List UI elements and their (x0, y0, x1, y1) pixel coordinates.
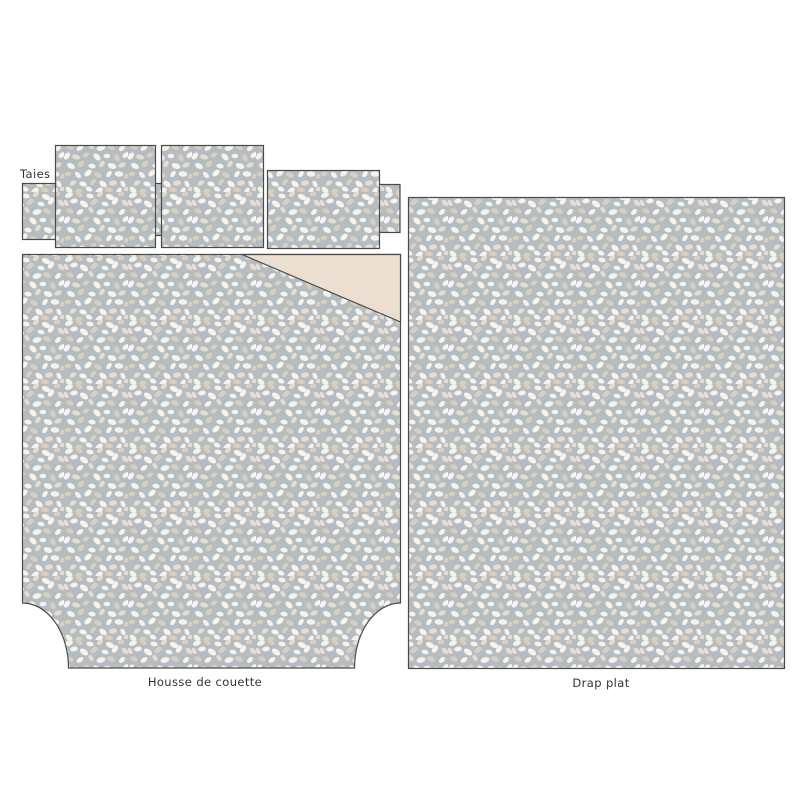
pillowcase-flap-left (23, 184, 61, 240)
bedding-diagram: Taies Housse de couette Drap plat (0, 0, 800, 800)
flat-sheet-panel (409, 198, 785, 669)
fabric-pieces (23, 146, 785, 669)
pillowcase-square-panel-back (162, 146, 264, 248)
label-flat-sheet: Drap plat (572, 676, 629, 690)
label-pillowcases: Taies (19, 167, 50, 181)
duvet-cover-panel (23, 255, 401, 669)
bedding-set-mockup: Taies Housse de couette Drap plat (0, 0, 800, 800)
pillowcase-square-panel-front (56, 146, 156, 248)
label-duvet-cover: Housse de couette (148, 675, 262, 689)
pillowcase-rect-panel (268, 171, 380, 249)
